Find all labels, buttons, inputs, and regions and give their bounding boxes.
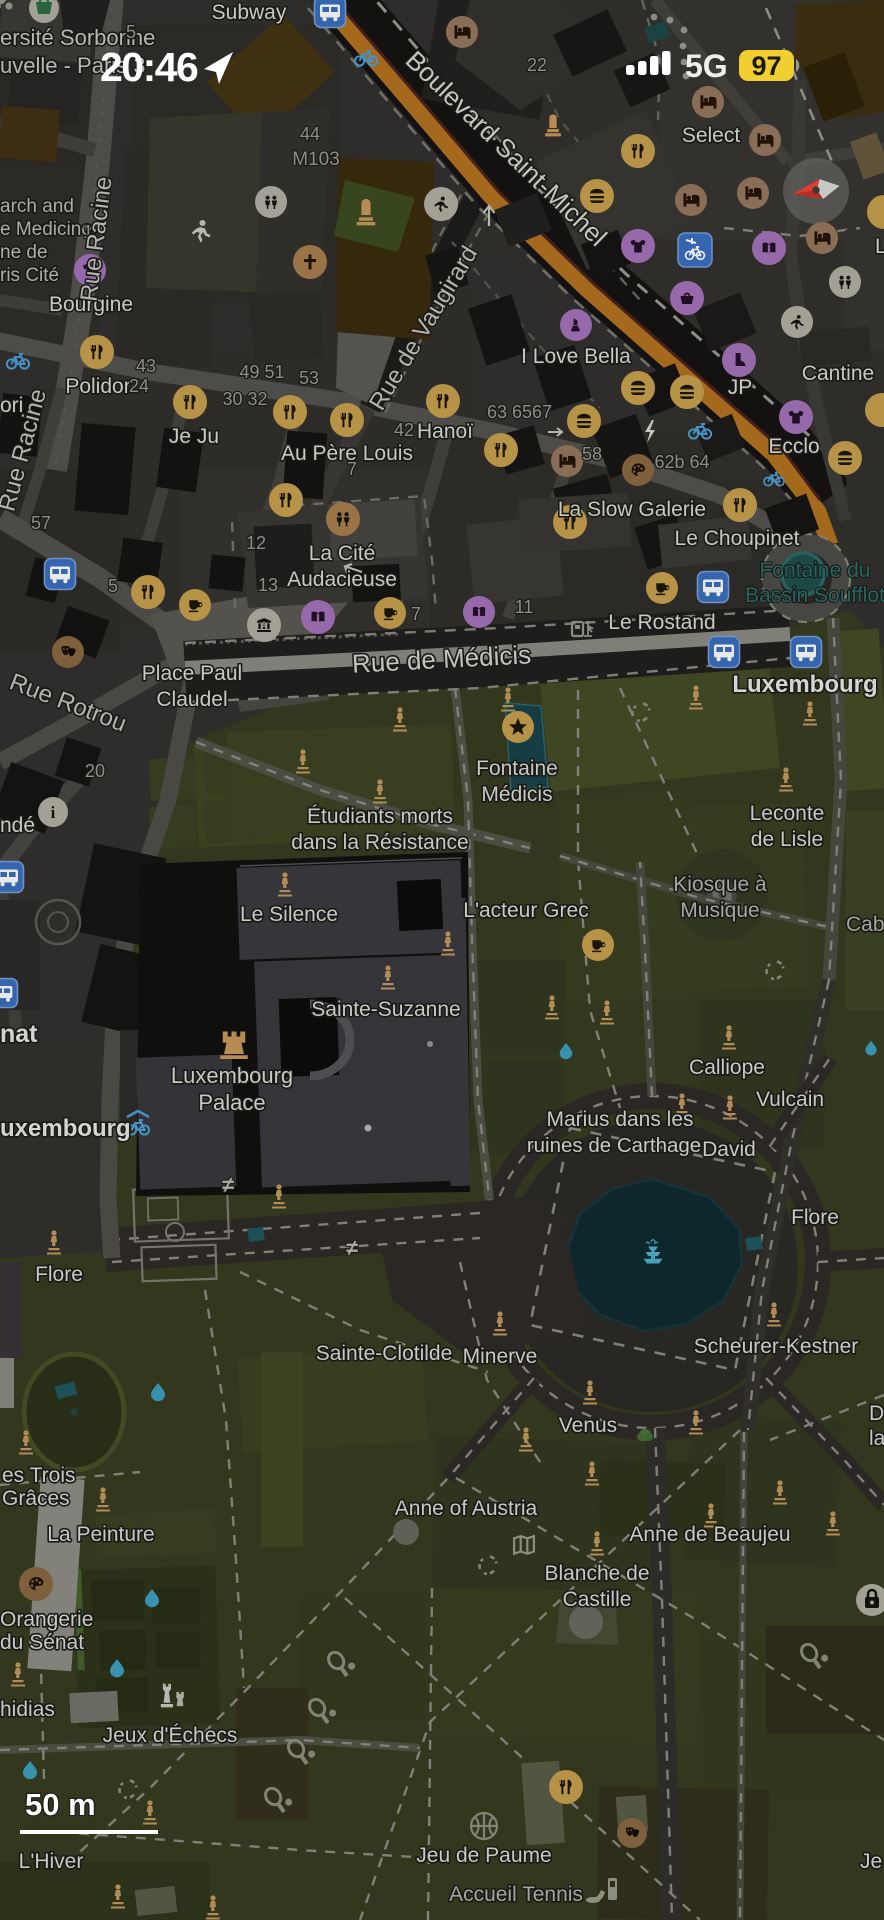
svg-text:97: 97 [751,51,781,81]
svg-text:50 m: 50 m [25,1787,96,1822]
svg-text:5G: 5G [685,48,728,84]
svg-text:20:46: 20:46 [100,44,198,90]
